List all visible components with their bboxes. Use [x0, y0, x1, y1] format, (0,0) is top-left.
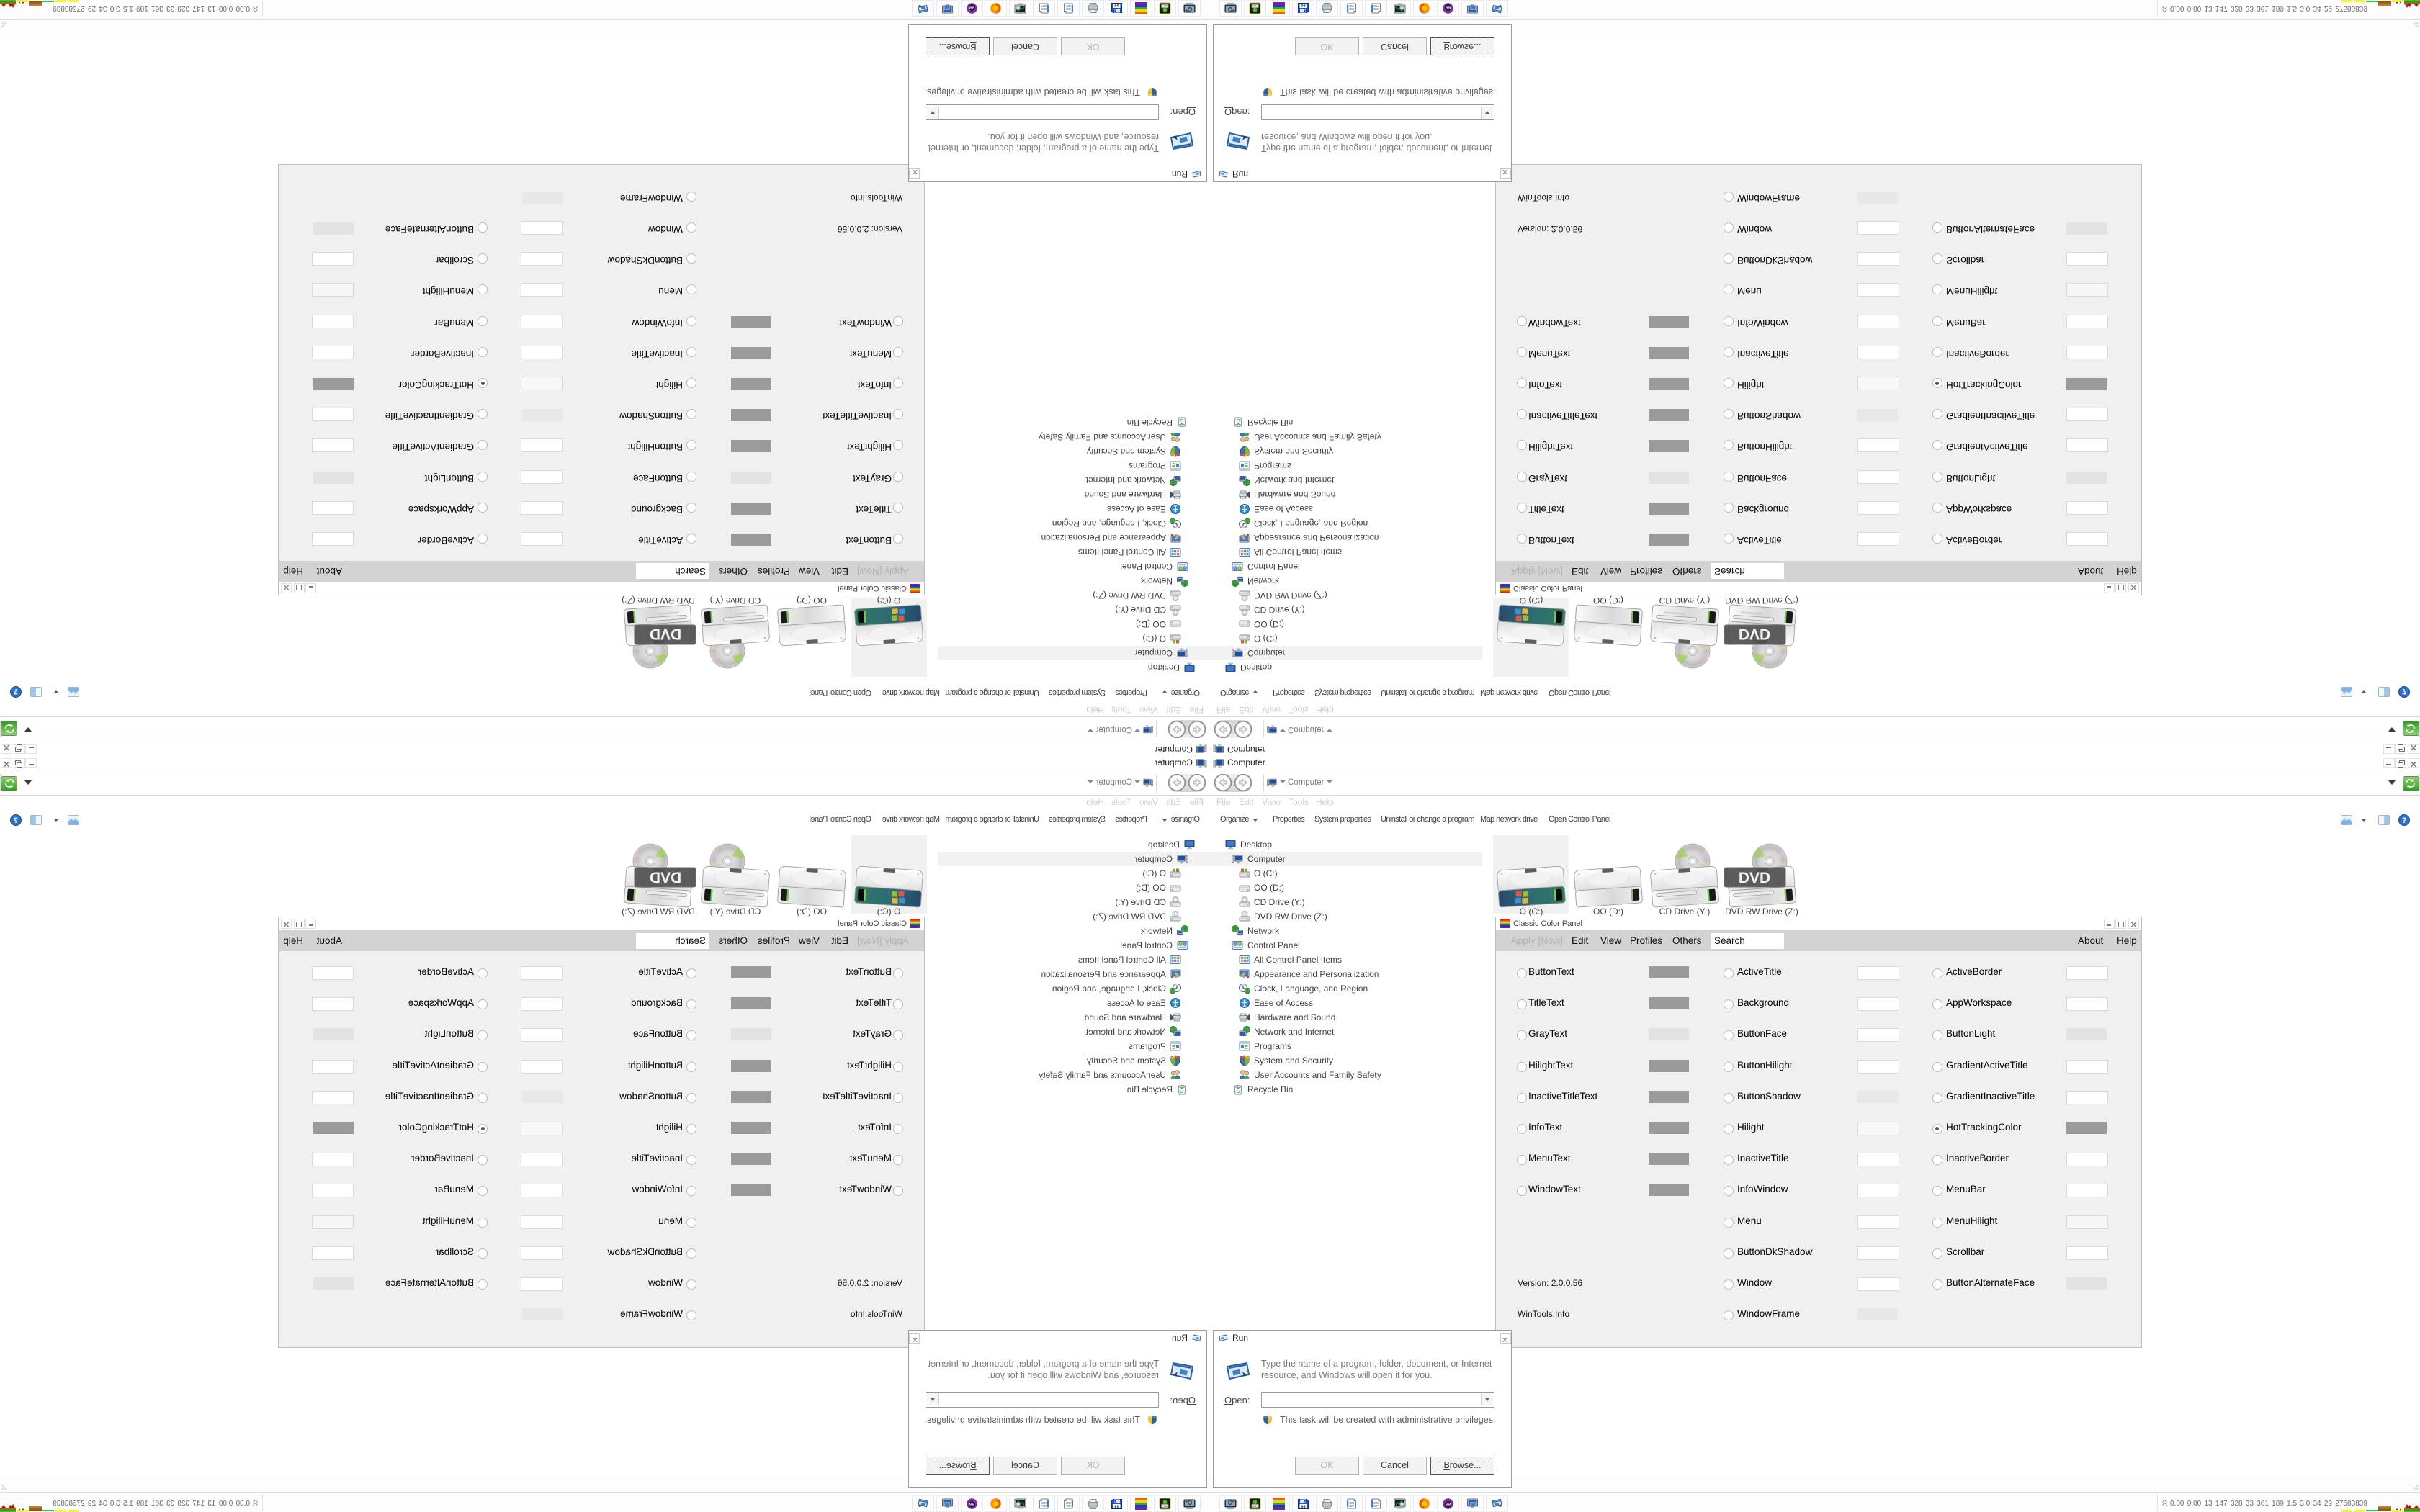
- svg-text:64: 64: [1114, 1504, 1119, 1509]
- svg-text:?: ?: [2402, 687, 2407, 696]
- svg-text:64: 64: [1301, 1504, 1306, 1509]
- svg-text:64: 64: [1301, 3, 1306, 8]
- svg-text:DVD: DVD: [650, 870, 681, 886]
- svg-text:DVD: DVD: [1739, 870, 1770, 886]
- svg-text:DVD: DVD: [650, 626, 681, 642]
- svg-text:?: ?: [13, 687, 18, 696]
- svg-text:DVD: DVD: [1739, 626, 1770, 642]
- svg-text:64: 64: [1114, 3, 1119, 8]
- svg-text:?: ?: [13, 816, 18, 825]
- svg-text:?: ?: [2402, 816, 2407, 825]
